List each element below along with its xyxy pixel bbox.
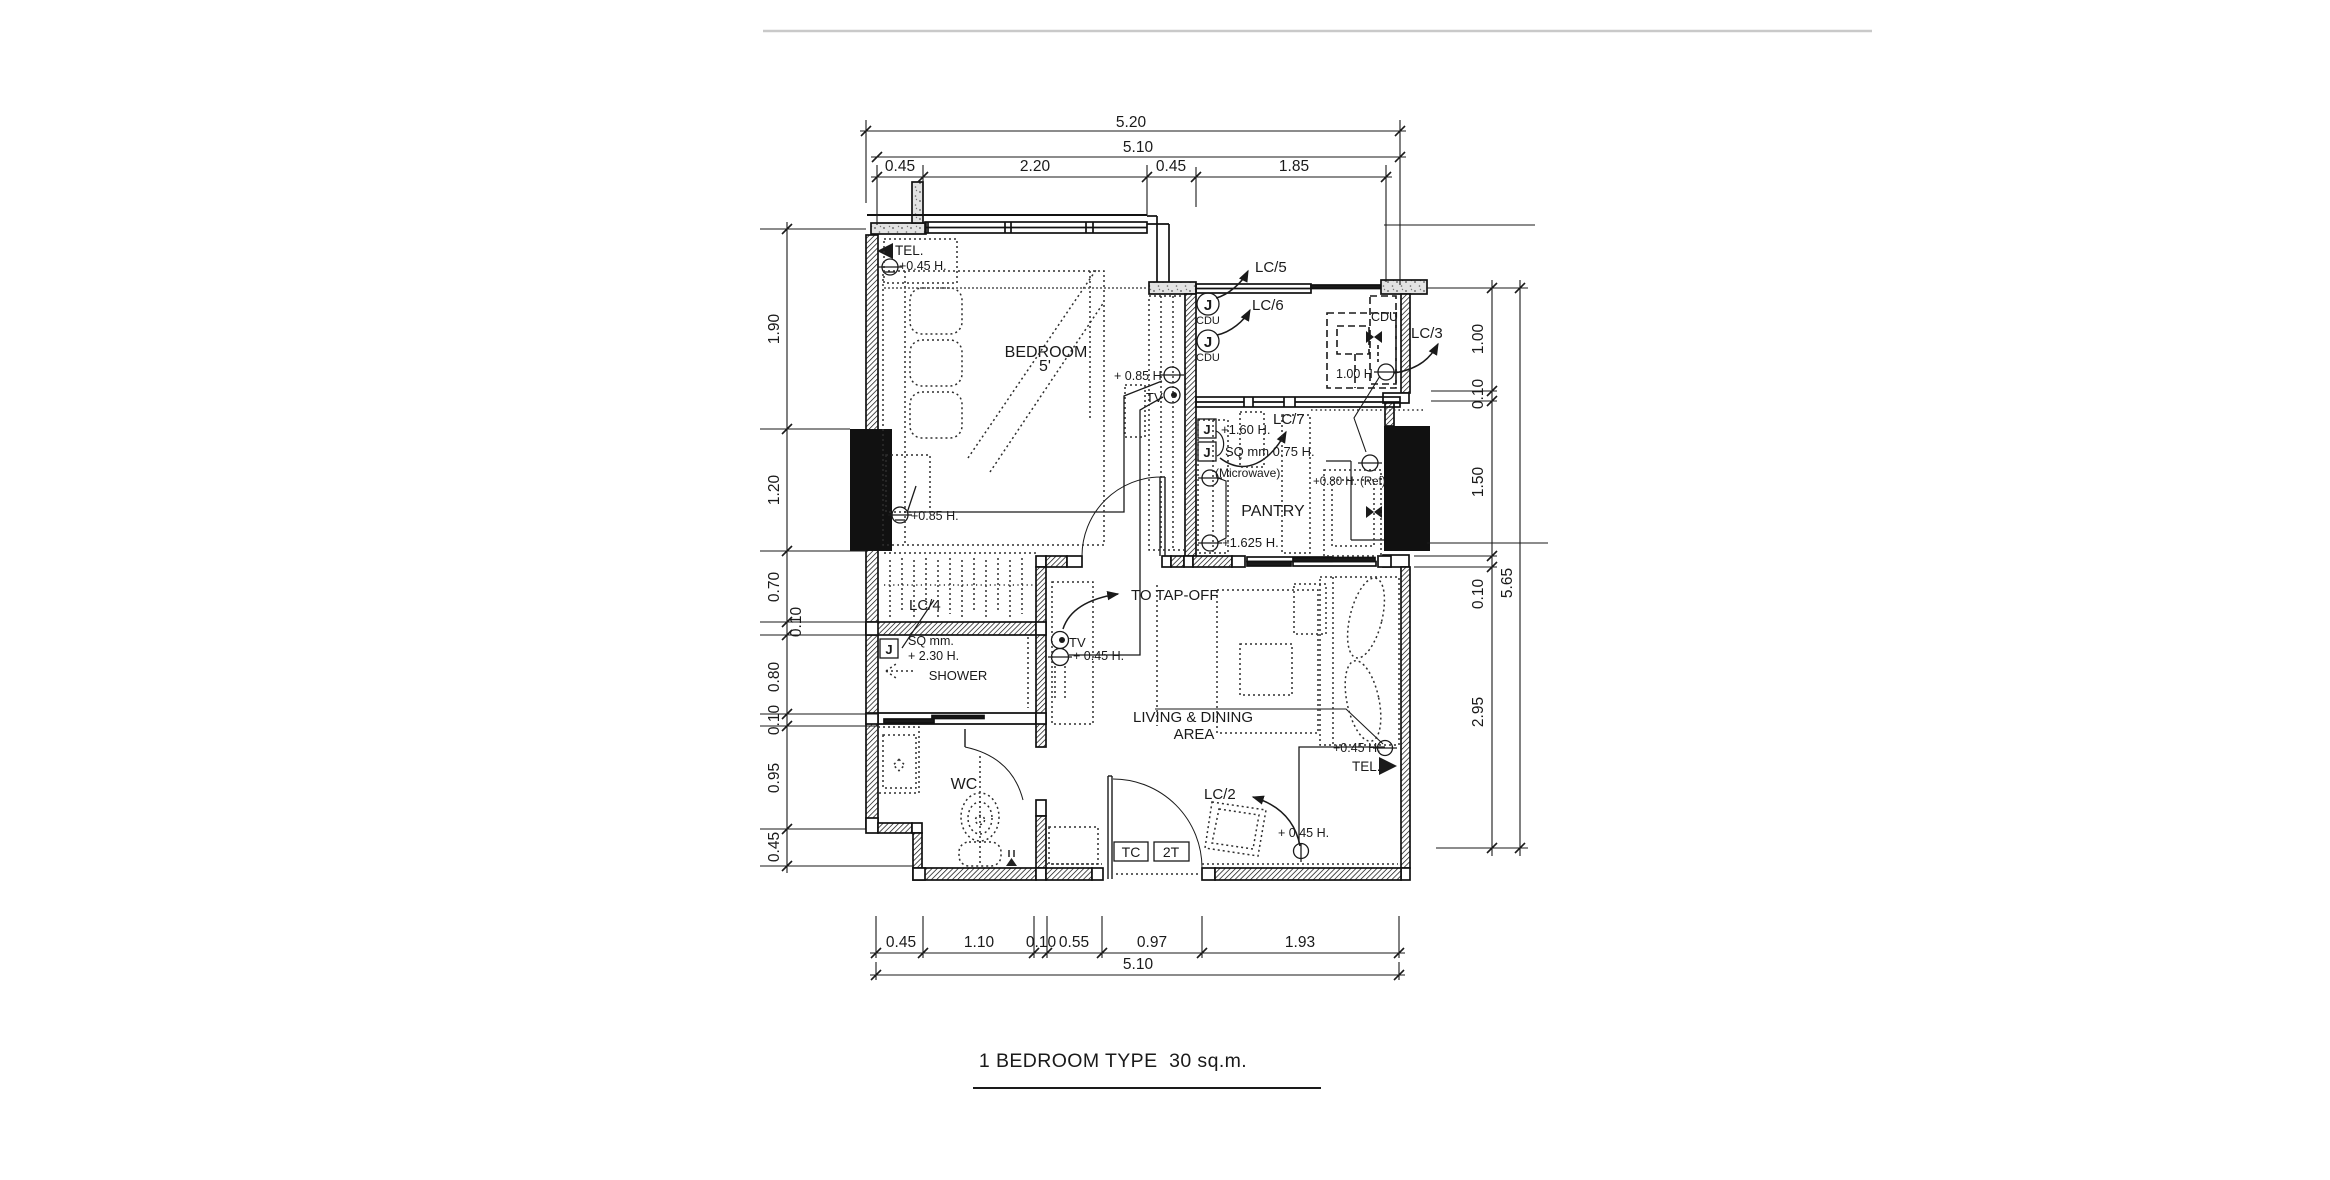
svg-text:1.90: 1.90 [766, 314, 783, 345]
svg-text:J: J [1204, 334, 1212, 351]
svg-text:TO TAP-OFF: TO TAP-OFF [1131, 587, 1219, 604]
svg-text:SQ mm.: SQ mm. [908, 634, 954, 648]
svg-text:1.00: 1.00 [1470, 324, 1487, 355]
svg-text:0.10: 0.10 [766, 705, 783, 736]
svg-text:2.95: 2.95 [1470, 697, 1487, 727]
svg-text:TV: TV [1069, 635, 1086, 650]
svg-text:WC: WC [951, 776, 978, 793]
svg-text:TEL.: TEL. [1352, 759, 1381, 774]
svg-text:0.97: 0.97 [1137, 934, 1167, 951]
svg-text:5': 5' [1039, 358, 1051, 375]
svg-text:1.85: 1.85 [1279, 158, 1309, 175]
svg-text:AREA: AREA [1174, 726, 1215, 743]
svg-text:1 BEDROOM TYPE 30 sq.m.: 1 BEDROOM TYPE 30 sq.m. [979, 1050, 1247, 1072]
svg-text:5.20: 5.20 [1116, 114, 1147, 131]
svg-text:0.45: 0.45 [766, 832, 783, 862]
svg-text:1.10: 1.10 [964, 934, 995, 951]
svg-text:+ 0.85 H: + 0.85 H [1114, 369, 1162, 383]
svg-text:LIVING & DINING: LIVING & DINING [1133, 709, 1253, 726]
svg-text:CDU: CDU [1196, 352, 1220, 364]
svg-text:0.10: 0.10 [1470, 579, 1487, 610]
svg-text:CDU: CDU [1371, 310, 1398, 324]
svg-text:+ 0.45 H.: + 0.45 H. [1073, 649, 1124, 663]
svg-text:LC/7: LC/7 [1273, 411, 1305, 428]
svg-text:+0.80 H. (Ref): +0.80 H. (Ref) [1313, 476, 1386, 488]
svg-text:+0.45 H.: +0.45 H. [1333, 741, 1381, 755]
svg-text:LC/5: LC/5 [1255, 259, 1287, 276]
svg-text:+1.60 H.: +1.60 H. [1221, 422, 1271, 437]
svg-text:TEL.: TEL. [895, 243, 924, 258]
svg-text:+ 0.45 H.: + 0.45 H. [1278, 826, 1329, 840]
svg-text:(Microwave): (Microwave) [1215, 466, 1280, 480]
svg-text:2.20: 2.20 [1020, 158, 1051, 175]
svg-text:1.50: 1.50 [1470, 467, 1487, 498]
svg-text:0.70: 0.70 [766, 572, 783, 603]
svg-text:0.45: 0.45 [885, 158, 915, 175]
svg-text:PANTRY: PANTRY [1241, 503, 1305, 520]
svg-text:2T: 2T [1163, 844, 1180, 860]
svg-text:0.80: 0.80 [766, 662, 783, 693]
svg-text:5.10: 5.10 [1123, 139, 1154, 156]
svg-text:5.10: 5.10 [1123, 956, 1154, 973]
svg-text:J: J [885, 642, 892, 657]
svg-text:0.95: 0.95 [766, 763, 783, 793]
svg-text:0.10: 0.10 [788, 607, 805, 638]
svg-text:0.45: 0.45 [886, 934, 916, 951]
svg-text:+1.625 H.: +1.625 H. [1222, 535, 1279, 550]
svg-text:0.10: 0.10 [1470, 379, 1487, 410]
svg-text:0.55: 0.55 [1059, 934, 1089, 951]
svg-text:J: J [1203, 445, 1210, 460]
svg-text:J: J [1203, 422, 1210, 437]
svg-text:SHOWER: SHOWER [929, 668, 988, 683]
svg-text:1.20: 1.20 [766, 475, 783, 506]
svg-text:LC/3: LC/3 [1411, 325, 1443, 342]
svg-text:LC/2: LC/2 [1204, 786, 1236, 803]
svg-text:1.93: 1.93 [1285, 934, 1315, 951]
svg-text:0.45: 0.45 [1156, 158, 1186, 175]
svg-text:SQ mm 0.75 H.: SQ mm 0.75 H. [1225, 444, 1315, 459]
svg-text:+ 2.30 H.: + 2.30 H. [908, 649, 959, 663]
svg-text:CDU: CDU [1196, 315, 1220, 327]
svg-text:+0.85 H.: +0.85 H. [911, 509, 959, 523]
svg-text:TC: TC [1122, 844, 1141, 860]
svg-text:J: J [1204, 297, 1212, 314]
svg-text:0.10: 0.10 [1026, 934, 1057, 951]
svg-text:5.65: 5.65 [1499, 568, 1516, 598]
svg-text:LC/6: LC/6 [1252, 297, 1284, 314]
